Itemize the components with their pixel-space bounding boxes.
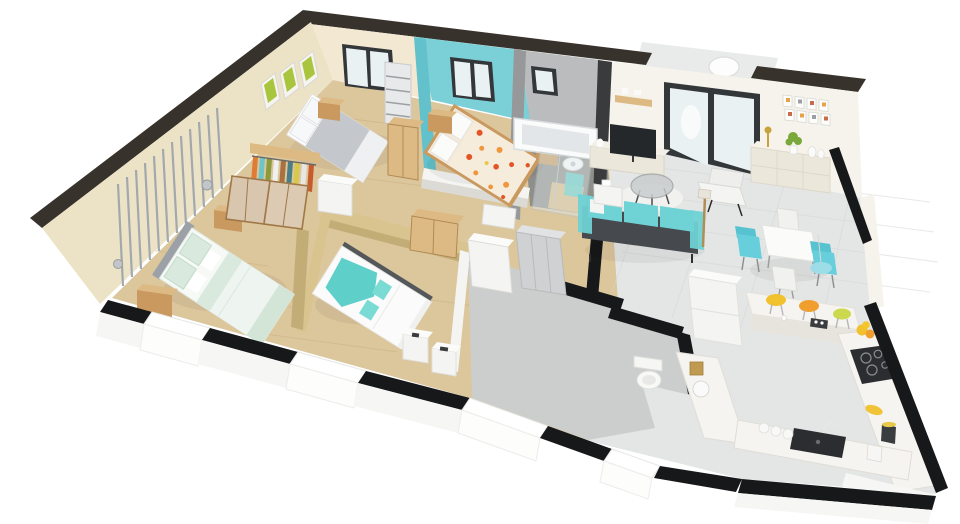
wood-cabinet-hall	[410, 209, 464, 258]
bookshelf	[385, 62, 411, 127]
window-bedroom2	[450, 57, 495, 102]
tall-fridge-cabinet	[688, 269, 742, 346]
tv-stand-vase	[597, 139, 604, 148]
white-vase	[808, 147, 816, 158]
gray-storage-unit	[516, 225, 566, 295]
coffee-maker	[690, 362, 703, 375]
window-bathroom	[531, 66, 558, 96]
white-jar	[771, 426, 781, 436]
sofa-armrest	[578, 194, 592, 234]
white-canister	[867, 444, 882, 462]
sconce-icon	[114, 260, 123, 269]
white-jar	[759, 423, 769, 433]
tall-white-cabinet	[468, 233, 514, 293]
sliding-door-panels	[226, 176, 308, 229]
shelf-items	[622, 88, 628, 94]
window-bay	[600, 449, 660, 499]
white-nightstand	[403, 328, 433, 363]
toilet-seat	[642, 375, 656, 385]
sconce-icon	[202, 180, 212, 190]
dark-jar	[881, 422, 896, 444]
kettle	[693, 381, 709, 397]
hanging-chair	[709, 57, 739, 77]
white-cabinet	[318, 174, 358, 216]
nightstand-wood-left	[428, 114, 452, 134]
white-jar	[783, 429, 793, 439]
floorplan-3d-render	[0, 0, 960, 524]
hanging-chair-through-glass	[681, 105, 701, 139]
floorplan-screenshot	[0, 0, 960, 524]
nightstand-wood	[318, 102, 340, 121]
white-door-panel	[482, 204, 516, 229]
shelf-items	[634, 90, 641, 95]
white-vase	[818, 150, 824, 159]
